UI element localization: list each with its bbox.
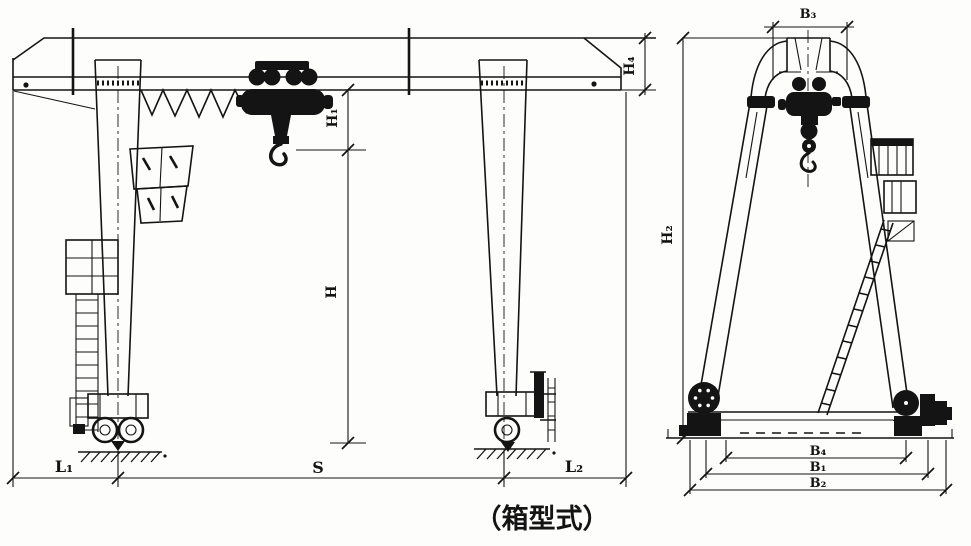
hoist-cross-section [778, 77, 841, 171]
label-lifting-height: H [324, 285, 340, 298]
caption-text: （箱型式） [475, 503, 610, 535]
dim-girder-end-height: H₄ [621, 32, 656, 96]
right-wheel [495, 418, 519, 442]
main-girder [13, 28, 656, 109]
ground-hatch-left [78, 452, 167, 462]
label-overall-base-width: B₂ [810, 476, 827, 491]
bottom-carriage [666, 382, 954, 438]
front-view: H₄ H₁ H L₁ S L₂ [7, 28, 656, 487]
side-cabinets [871, 139, 916, 241]
electrical-cabinet [130, 146, 193, 223]
label-span: S [312, 458, 324, 477]
rail-contact-right [501, 442, 515, 452]
dim-heights: H₁ H [296, 84, 366, 449]
end-stop-dot-right [591, 81, 596, 86]
label-base-inner-width: B₄ [810, 444, 827, 459]
label-girder-end-height: H₄ [622, 56, 638, 75]
side-wheel-right-drive [893, 390, 952, 436]
label-hoist-headroom: H₁ [325, 108, 341, 127]
access-ladder [66, 240, 118, 432]
hook-icon [271, 144, 286, 165]
rail-contact-left [111, 441, 125, 451]
label-left-cantilever: L₁ [55, 457, 73, 476]
label-overall-height: H₂ [660, 225, 676, 244]
hoist-body [241, 89, 325, 115]
left-wheel-2 [119, 418, 143, 442]
ground-hatch-right [474, 449, 556, 459]
label-wheel-base: B₁ [810, 460, 827, 475]
dim-overall-height: H₂ [660, 32, 790, 444]
leg-side-ladder [530, 372, 556, 442]
festoon-cable [141, 90, 252, 117]
right-bogie [486, 392, 540, 416]
label-top-width: B₃ [800, 7, 817, 22]
label-right-cantilever: L₂ [565, 457, 583, 476]
diagonal-ladder [818, 220, 893, 415]
side-view: H₂ B₃ B₄ B₁ B₂ [660, 7, 954, 496]
end-stop-dot-left [23, 82, 28, 87]
side-wheel-left [679, 382, 721, 436]
dim-base-widths: B₄ B₁ B₂ [684, 440, 952, 496]
crane-drawing-svg: H₄ H₁ H L₁ S L₂ [0, 0, 971, 546]
right-leg [474, 60, 556, 459]
gantry-crane-drawing: H₄ H₁ H L₁ S L₂ [0, 0, 971, 546]
